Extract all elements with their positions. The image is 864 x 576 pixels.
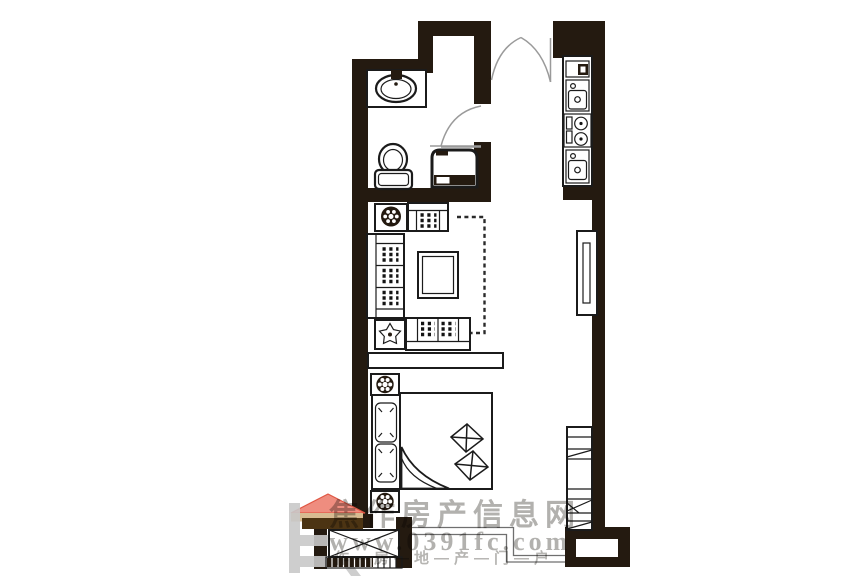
burner-dot	[579, 137, 582, 140]
entry-door-arc-left	[492, 38, 522, 81]
washer-handle	[436, 151, 448, 156]
basin-tap-icon	[391, 70, 402, 79]
watermark-tagline: 作—房—地—产—门—户	[334, 551, 554, 566]
column-notch	[576, 539, 618, 557]
washer-base-notch	[437, 177, 450, 184]
floor-plan-drawing	[0, 0, 864, 576]
side-window	[577, 231, 597, 315]
flower-center	[388, 333, 392, 337]
living-room	[367, 203, 503, 368]
wall-segment	[352, 59, 368, 521]
wall-segment	[352, 188, 491, 202]
toilet-tank	[375, 170, 412, 189]
bedroom	[371, 374, 492, 512]
basin-drain	[394, 82, 398, 86]
entry-double-door	[492, 38, 551, 83]
bathroom	[367, 70, 481, 189]
wall-segment	[474, 21, 491, 104]
console-table	[368, 353, 503, 368]
bathroom-door-arc	[441, 106, 481, 146]
entry-door-arc-right	[521, 38, 551, 83]
armchair-cushion-dots	[421, 215, 437, 226]
tv-dashed-outline	[457, 217, 485, 333]
burner-dot	[579, 122, 582, 125]
kitchen-counter	[563, 56, 592, 186]
kitchen	[563, 56, 592, 186]
wall-unit-panel	[581, 67, 586, 73]
floor-plan-page: 焦作房产信息网 www.0391fc.com 作—房—地—产—门—户	[0, 0, 864, 576]
coffee-table	[418, 252, 458, 298]
